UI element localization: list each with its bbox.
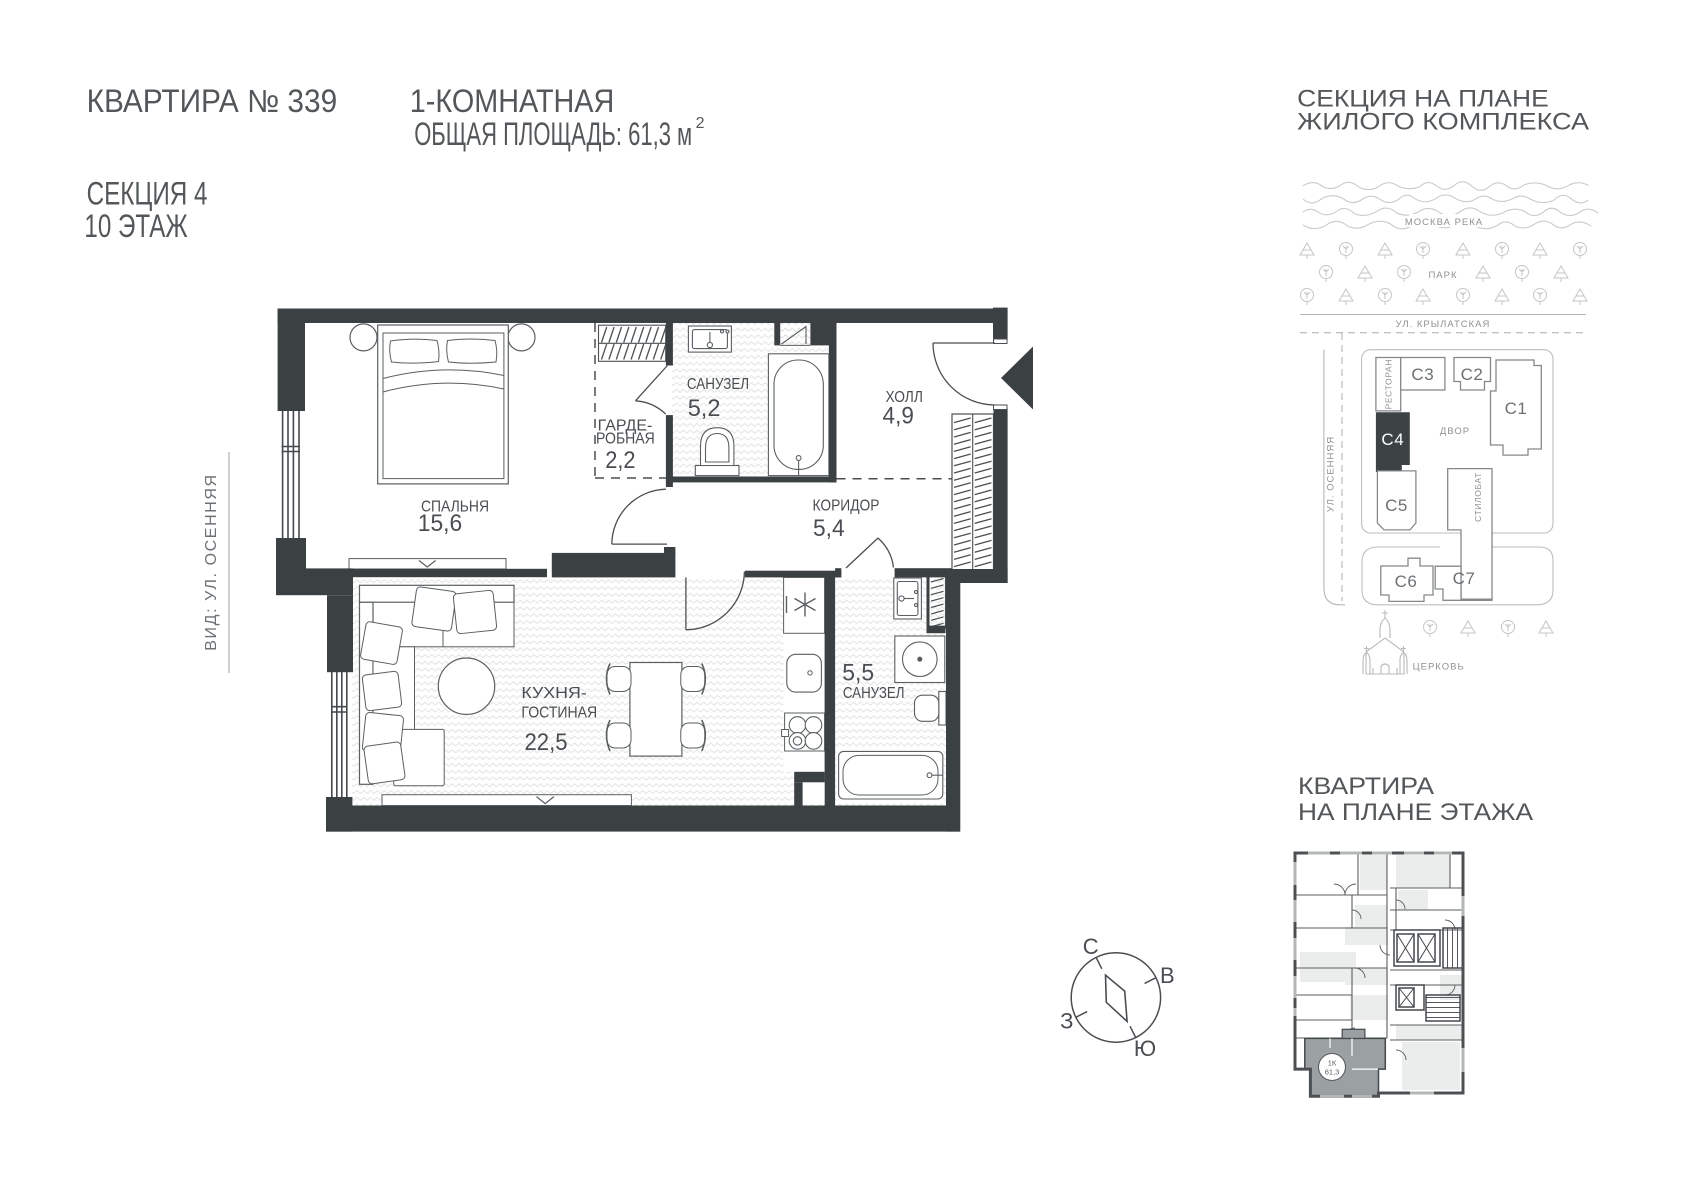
svg-text:РЕСТОРАН: РЕСТОРАН: [1383, 359, 1393, 409]
svg-text:КОРИДОР: КОРИДОР: [813, 498, 880, 515]
svg-text:В: В: [1160, 963, 1175, 988]
svg-text:1К: 1К: [1328, 1059, 1337, 1068]
svg-text:4,9: 4,9: [883, 402, 914, 429]
svg-text:5,2: 5,2: [688, 395, 721, 422]
svg-text:C4: C4: [1381, 430, 1404, 449]
svg-text:НА ПЛАНЕ ЭТАЖА: НА ПЛАНЕ ЭТАЖА: [1298, 799, 1533, 826]
svg-text:КВАРТИРА: КВАРТИРА: [1298, 773, 1434, 800]
svg-text:ДВОР: ДВОР: [1440, 426, 1470, 437]
svg-text:1-КОМНАТНАЯ: 1-КОМНАТНАЯ: [410, 83, 615, 119]
svg-text:C5: C5: [1385, 496, 1408, 515]
svg-text:2,2: 2,2: [605, 447, 635, 474]
svg-text:МОСКВА РЕКА: МОСКВА РЕКА: [1405, 217, 1483, 228]
svg-text:C2: C2: [1461, 365, 1484, 384]
svg-text:УЛ. КРЫЛАТСКАЯ: УЛ. КРЫЛАТСКАЯ: [1396, 319, 1491, 330]
svg-text:5,4: 5,4: [813, 515, 845, 542]
svg-text:ОБЩАЯ ПЛОЩАДЬ: 61,3 м: ОБЩАЯ ПЛОЩАДЬ: 61,3 м: [414, 116, 692, 152]
svg-text:61,3: 61,3: [1325, 1068, 1340, 1077]
svg-text:ПАРК: ПАРК: [1428, 270, 1457, 281]
svg-text:22,5: 22,5: [524, 729, 567, 756]
svg-text:САНУЗЕЛ: САНУЗЕЛ: [843, 685, 905, 702]
svg-text:Ю: Ю: [1134, 1036, 1156, 1061]
svg-text:5,5: 5,5: [842, 659, 874, 686]
svg-text:ВИД: УЛ. ОСЕННЯЯ: ВИД: УЛ. ОСЕННЯЯ: [203, 473, 220, 650]
svg-text:C1: C1: [1505, 399, 1528, 418]
svg-text:С: С: [1083, 934, 1099, 959]
svg-text:КУХНЯ-: КУХНЯ-: [521, 685, 586, 702]
svg-text:УЛ. ОСЕННЯЯ: УЛ. ОСЕННЯЯ: [1326, 436, 1337, 512]
svg-text:2: 2: [696, 115, 705, 132]
svg-text:10 ЭТАЖ: 10 ЭТАЖ: [84, 208, 188, 244]
svg-text:СТИЛОБАТ: СТИЛОБАТ: [1473, 472, 1483, 522]
svg-text:КВАРТИРА № 339: КВАРТИРА № 339: [87, 83, 338, 119]
svg-text:C3: C3: [1411, 365, 1434, 384]
svg-text:САНУЗЕЛ: САНУЗЕЛ: [687, 376, 749, 393]
svg-text:ЦЕРКОВЬ: ЦЕРКОВЬ: [1413, 661, 1465, 672]
svg-text:РОБНАЯ: РОБНАЯ: [596, 431, 655, 448]
svg-text:СЕКЦИЯ 4: СЕКЦИЯ 4: [87, 176, 208, 212]
svg-text:З: З: [1060, 1009, 1073, 1034]
svg-text:15,6: 15,6: [418, 510, 462, 537]
svg-text:ЖИЛОГО КОМПЛЕКСА: ЖИЛОГО КОМПЛЕКСА: [1297, 109, 1589, 136]
svg-text:C6: C6: [1395, 572, 1418, 591]
svg-text:C7: C7: [1453, 569, 1476, 588]
svg-text:ГОСТИНАЯ: ГОСТИНАЯ: [521, 704, 597, 721]
